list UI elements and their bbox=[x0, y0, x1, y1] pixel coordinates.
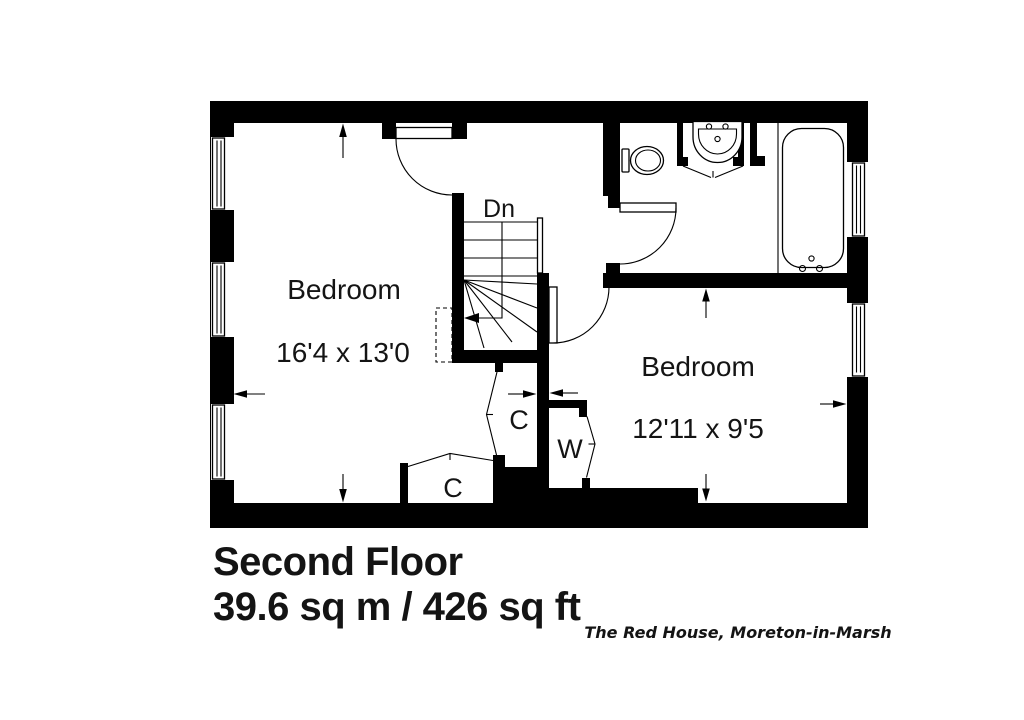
stair-direction-arrow-icon bbox=[464, 313, 479, 323]
dimension-arrows-bedroom1 bbox=[234, 124, 537, 503]
closet-hall-label: C bbox=[509, 405, 529, 435]
door-bedroom2 bbox=[549, 287, 609, 343]
bifold-closet-hall bbox=[487, 372, 498, 457]
property-name-label: The Red House, Moreton-in-Marsh bbox=[584, 623, 891, 642]
window-right-bedroom2 bbox=[847, 303, 868, 377]
closet-bottom-label: C bbox=[443, 473, 463, 503]
bifold-closet-bottom bbox=[408, 454, 493, 467]
stair-rail bbox=[538, 218, 543, 273]
door-bedroom1 bbox=[396, 128, 452, 196]
door-bathroom bbox=[620, 203, 676, 264]
bifold-wardrobe bbox=[587, 417, 596, 478]
floor-plan-page: Bedroom 16'4 x 13'0 Bedroom 12'11 x 9'5 … bbox=[0, 0, 1024, 720]
bedroom1-label: Bedroom bbox=[287, 274, 401, 305]
bedroom2-label: Bedroom bbox=[641, 351, 755, 382]
headroom-dashed-box bbox=[436, 308, 452, 362]
staircase bbox=[436, 218, 543, 362]
wardrobe-label: W bbox=[557, 434, 583, 464]
bathtub-icon bbox=[778, 122, 844, 273]
stairs-down-label: Dn bbox=[483, 195, 515, 223]
window-right-bathroom bbox=[847, 162, 868, 237]
window-left-3 bbox=[211, 404, 234, 480]
bedroom1-dimensions: 16'4 x 13'0 bbox=[276, 337, 410, 368]
floor-name-title: Second Floor bbox=[213, 540, 463, 584]
dimension-arrows-bedroom2 bbox=[550, 289, 847, 502]
bedroom2-dimensions: 12'11 x 9'5 bbox=[632, 413, 764, 444]
walls bbox=[210, 101, 868, 528]
window-left-2 bbox=[211, 262, 234, 337]
floor-area-title: 39.6 sq m / 426 sq ft bbox=[213, 585, 581, 629]
sink-icon bbox=[683, 122, 743, 178]
window-left-1 bbox=[211, 137, 234, 210]
toilet-icon bbox=[622, 147, 664, 175]
floor-plan-canvas: Bedroom 16'4 x 13'0 Bedroom 12'11 x 9'5 … bbox=[0, 0, 1024, 720]
